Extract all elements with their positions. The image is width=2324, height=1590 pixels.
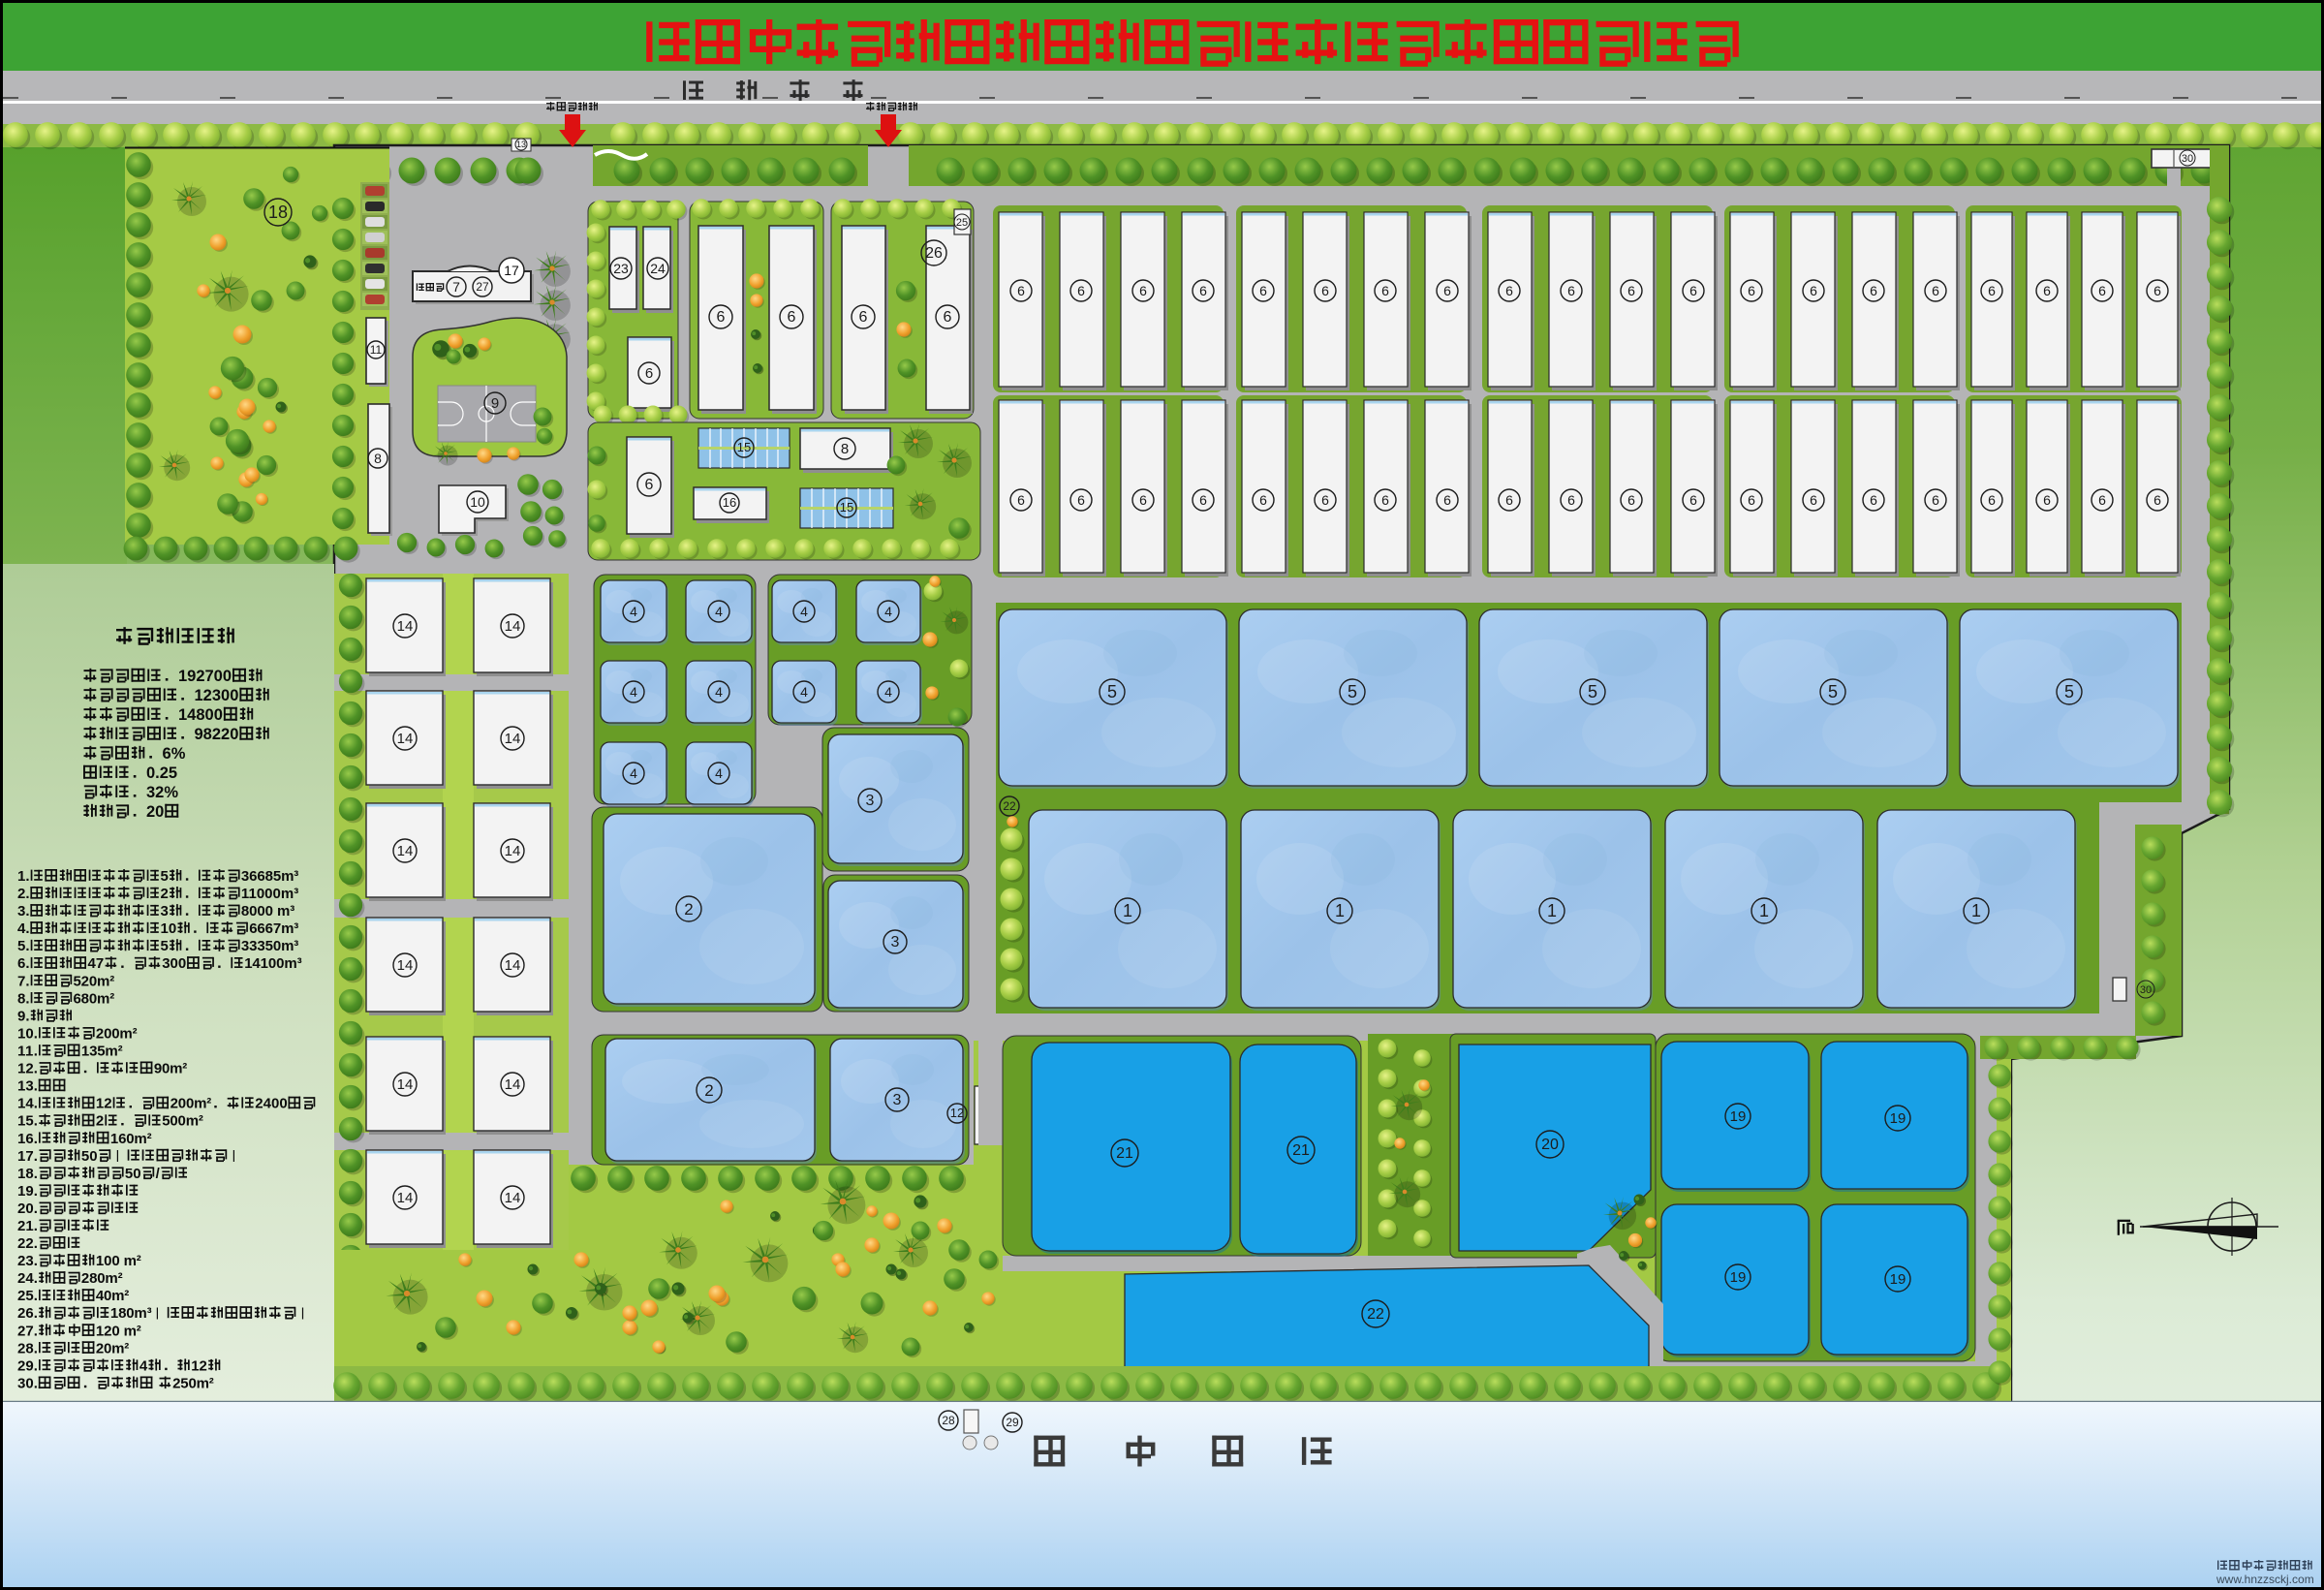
svg-text:6: 6	[1259, 492, 1267, 508]
svg-text:47: 47	[88, 955, 105, 972]
svg-text:6: 6	[1870, 492, 1877, 508]
svg-text:6: 6	[944, 309, 952, 326]
svg-text:12: 12	[950, 1106, 964, 1120]
svg-text:6: 6	[1443, 283, 1451, 298]
svg-text:14: 14	[397, 957, 414, 974]
svg-text:11.: 11.	[17, 1044, 38, 1060]
svg-text:2: 2	[161, 886, 169, 902]
svg-text:12: 12	[191, 1357, 207, 1374]
svg-text:14: 14	[397, 618, 414, 635]
svg-text:4: 4	[884, 684, 892, 700]
svg-text:1: 1	[1759, 901, 1769, 920]
svg-text:14: 14	[505, 618, 521, 635]
svg-text:14: 14	[397, 1076, 414, 1093]
svg-text:10.: 10.	[17, 1026, 38, 1043]
svg-text:6: 6	[1259, 283, 1267, 298]
svg-text:26: 26	[925, 245, 943, 262]
svg-text:6: 6	[717, 309, 726, 326]
svg-text:19: 19	[1890, 1271, 1906, 1288]
svg-text:6.: 6.	[17, 955, 30, 972]
svg-text:14: 14	[397, 731, 414, 747]
svg-text:14100m³: 14100m³	[244, 955, 301, 972]
svg-text:6: 6	[645, 477, 654, 493]
svg-text:6%: 6%	[163, 745, 186, 763]
svg-text:28: 28	[942, 1414, 955, 1427]
svg-text:21: 21	[1116, 1145, 1133, 1162]
svg-text:24: 24	[650, 261, 666, 276]
svg-text:8.: 8.	[17, 990, 30, 1007]
svg-text:4: 4	[715, 604, 723, 619]
svg-text:12: 12	[96, 1096, 112, 1112]
svg-text:18: 18	[268, 203, 288, 222]
svg-text:15.: 15.	[17, 1113, 38, 1130]
svg-text:120 m²: 120 m²	[96, 1323, 141, 1339]
svg-text:4.: 4.	[17, 920, 30, 937]
svg-text:4: 4	[630, 604, 637, 619]
svg-text:192700: 192700	[178, 668, 232, 685]
svg-text:6: 6	[1988, 283, 1996, 298]
svg-text:6: 6	[1321, 283, 1329, 298]
svg-text:5: 5	[2064, 682, 2074, 701]
svg-text:300: 300	[162, 955, 186, 972]
svg-text:14800: 14800	[178, 706, 223, 724]
svg-text:30: 30	[2140, 984, 2152, 996]
svg-text:6: 6	[1381, 283, 1389, 298]
svg-text:6: 6	[1567, 492, 1575, 508]
svg-text:6: 6	[2098, 492, 2106, 508]
svg-text:500m²: 500m²	[162, 1113, 203, 1130]
svg-text:40m²: 40m²	[96, 1288, 129, 1304]
svg-text:4: 4	[884, 604, 892, 619]
svg-text:14: 14	[505, 843, 521, 859]
svg-text:36685m³: 36685m³	[241, 868, 298, 885]
svg-text:27: 27	[476, 280, 489, 294]
svg-text:7.: 7.	[17, 973, 30, 989]
svg-text:4: 4	[630, 765, 637, 781]
svg-text:5: 5	[161, 868, 169, 885]
svg-text:28.: 28.	[17, 1340, 38, 1356]
svg-text:4: 4	[715, 765, 723, 781]
svg-text:9: 9	[491, 395, 499, 412]
svg-text:6: 6	[1810, 492, 1817, 508]
svg-text:6: 6	[1627, 283, 1635, 298]
svg-text:20m²: 20m²	[96, 1340, 129, 1356]
svg-text:200m²: 200m²	[170, 1096, 212, 1112]
svg-text:9.: 9.	[17, 1008, 30, 1024]
svg-text:6: 6	[1017, 492, 1025, 508]
svg-text:20: 20	[146, 803, 164, 821]
svg-text:1: 1	[1547, 901, 1557, 920]
svg-text:23.: 23.	[17, 1253, 38, 1269]
svg-text:33350m³: 33350m³	[241, 938, 298, 954]
svg-text:14: 14	[505, 1190, 521, 1206]
svg-text:6: 6	[2098, 283, 2106, 298]
svg-text:14: 14	[505, 957, 521, 974]
svg-text:22: 22	[1003, 799, 1016, 813]
svg-text:6: 6	[1748, 283, 1755, 298]
svg-text:15: 15	[737, 440, 751, 454]
svg-text:135m²: 135m²	[81, 1044, 123, 1060]
svg-text:6: 6	[1689, 492, 1697, 508]
svg-text:6: 6	[1505, 492, 1513, 508]
svg-text:6: 6	[1017, 283, 1025, 298]
svg-text:6: 6	[2154, 283, 2161, 298]
svg-text:4: 4	[630, 684, 637, 700]
svg-text:10: 10	[470, 494, 485, 510]
svg-text:520m²: 520m²	[74, 973, 115, 989]
svg-text:26.: 26.	[17, 1305, 38, 1322]
svg-text:17.: 17.	[17, 1148, 38, 1165]
svg-text:6: 6	[1988, 492, 1996, 508]
svg-text:680m²: 680m²	[74, 990, 115, 1007]
svg-text:5: 5	[1588, 682, 1597, 701]
svg-text:6: 6	[1321, 492, 1329, 508]
svg-text:14.: 14.	[17, 1096, 38, 1112]
svg-text:6: 6	[1810, 283, 1817, 298]
svg-text:6: 6	[1689, 283, 1697, 298]
svg-text:6: 6	[2043, 492, 2051, 508]
svg-text:www.hnzzsckj.com: www.hnzzsckj.com	[2216, 1573, 2314, 1586]
svg-text:6: 6	[1932, 492, 1939, 508]
svg-text:17: 17	[504, 263, 519, 278]
svg-text:6: 6	[1139, 283, 1147, 298]
svg-text:16: 16	[723, 495, 736, 510]
svg-text:3: 3	[893, 1092, 902, 1108]
svg-text:14: 14	[397, 1190, 414, 1206]
svg-text:180m³: 180m³	[110, 1305, 152, 1322]
svg-text:16.: 16.	[17, 1131, 38, 1147]
svg-text:25: 25	[956, 217, 968, 229]
svg-text:4: 4	[139, 1357, 148, 1374]
svg-text:98220: 98220	[195, 726, 239, 743]
svg-text:12.: 12.	[17, 1061, 38, 1077]
svg-text:50: 50	[81, 1148, 98, 1165]
svg-text:3: 3	[891, 934, 900, 951]
svg-text:22: 22	[1367, 1306, 1384, 1323]
svg-text:6: 6	[1077, 283, 1085, 298]
svg-text:6667m³: 6667m³	[249, 920, 298, 937]
svg-text:2: 2	[704, 1081, 713, 1100]
svg-text:6: 6	[1870, 283, 1877, 298]
svg-text:200m²: 200m²	[96, 1026, 138, 1043]
svg-text:6: 6	[859, 309, 868, 326]
svg-text:0.25: 0.25	[146, 764, 177, 782]
svg-text:5: 5	[1348, 682, 1357, 701]
svg-text:6: 6	[1077, 492, 1085, 508]
svg-text:3: 3	[161, 903, 169, 920]
svg-text:6: 6	[1627, 492, 1635, 508]
svg-text:10: 10	[161, 920, 177, 937]
svg-text:250m²: 250m²	[172, 1376, 214, 1392]
svg-text:6: 6	[1567, 283, 1575, 298]
svg-text:5.: 5.	[17, 938, 30, 954]
svg-text:3.: 3.	[17, 903, 30, 920]
svg-text:13.: 13.	[17, 1078, 38, 1095]
svg-text:6: 6	[1199, 283, 1207, 298]
svg-text:1: 1	[1335, 901, 1345, 920]
svg-text:20: 20	[1541, 1137, 1559, 1153]
svg-text:100 m²: 100 m²	[96, 1253, 141, 1269]
svg-text:5: 5	[1107, 682, 1117, 701]
svg-text:14: 14	[505, 731, 521, 747]
svg-text:2.: 2.	[17, 886, 30, 902]
svg-text:30: 30	[2182, 153, 2193, 165]
svg-text:30.: 30.	[17, 1376, 38, 1392]
svg-text:14: 14	[505, 1076, 521, 1093]
svg-text:4: 4	[800, 604, 808, 619]
svg-text:160m²: 160m²	[110, 1131, 152, 1147]
svg-text:50: 50	[125, 1166, 141, 1182]
svg-text:19: 19	[1730, 1269, 1747, 1286]
svg-text:27.: 27.	[17, 1323, 38, 1339]
svg-text:8: 8	[374, 451, 382, 466]
svg-text:21: 21	[1292, 1142, 1310, 1159]
svg-text:280m²: 280m²	[81, 1270, 123, 1287]
svg-text:11: 11	[370, 343, 383, 357]
svg-text:11000m³: 11000m³	[241, 886, 298, 902]
svg-text:1: 1	[1123, 901, 1132, 920]
svg-text:29: 29	[1006, 1416, 1019, 1429]
svg-text:6: 6	[2043, 283, 2051, 298]
svg-text:6: 6	[1932, 283, 1939, 298]
svg-text:22.: 22.	[17, 1235, 38, 1252]
svg-text:13: 13	[516, 140, 526, 149]
svg-text:20.: 20.	[17, 1200, 38, 1217]
svg-text:12300: 12300	[195, 687, 239, 704]
svg-text:19.: 19.	[17, 1183, 38, 1200]
svg-text:3: 3	[866, 793, 875, 809]
svg-text:6: 6	[1748, 492, 1755, 508]
svg-text:19: 19	[1890, 1110, 1906, 1127]
svg-text:14: 14	[397, 843, 414, 859]
svg-text:7: 7	[452, 279, 460, 295]
svg-text:8: 8	[841, 441, 849, 457]
svg-text:23: 23	[613, 261, 629, 276]
svg-text:2: 2	[96, 1113, 104, 1130]
svg-text:18.: 18.	[17, 1166, 38, 1182]
svg-text:6: 6	[645, 365, 653, 382]
svg-text:5: 5	[161, 938, 169, 954]
svg-text:32%: 32%	[146, 784, 178, 801]
svg-text:6: 6	[1199, 492, 1207, 508]
svg-text:24.: 24.	[17, 1270, 38, 1287]
svg-text:6: 6	[788, 309, 796, 326]
svg-text:15: 15	[840, 500, 853, 514]
svg-text:6: 6	[1443, 492, 1451, 508]
svg-text:1.: 1.	[17, 868, 30, 885]
svg-text:6: 6	[1381, 492, 1389, 508]
svg-text:1: 1	[1971, 901, 1981, 920]
svg-text:29.: 29.	[17, 1357, 38, 1374]
svg-text:6: 6	[2154, 492, 2161, 508]
svg-text:8000 m³: 8000 m³	[241, 903, 294, 920]
svg-text:6: 6	[1139, 492, 1147, 508]
svg-text:2400: 2400	[255, 1096, 287, 1112]
svg-text:4: 4	[800, 684, 808, 700]
svg-text:5: 5	[1828, 682, 1838, 701]
svg-text:19: 19	[1730, 1108, 1747, 1125]
svg-text:25.: 25.	[17, 1288, 38, 1304]
svg-text:21.: 21.	[17, 1218, 38, 1234]
svg-text:4: 4	[715, 684, 723, 700]
svg-text:2: 2	[684, 900, 693, 919]
svg-text:90m²: 90m²	[154, 1061, 187, 1077]
svg-text:6: 6	[1505, 283, 1513, 298]
